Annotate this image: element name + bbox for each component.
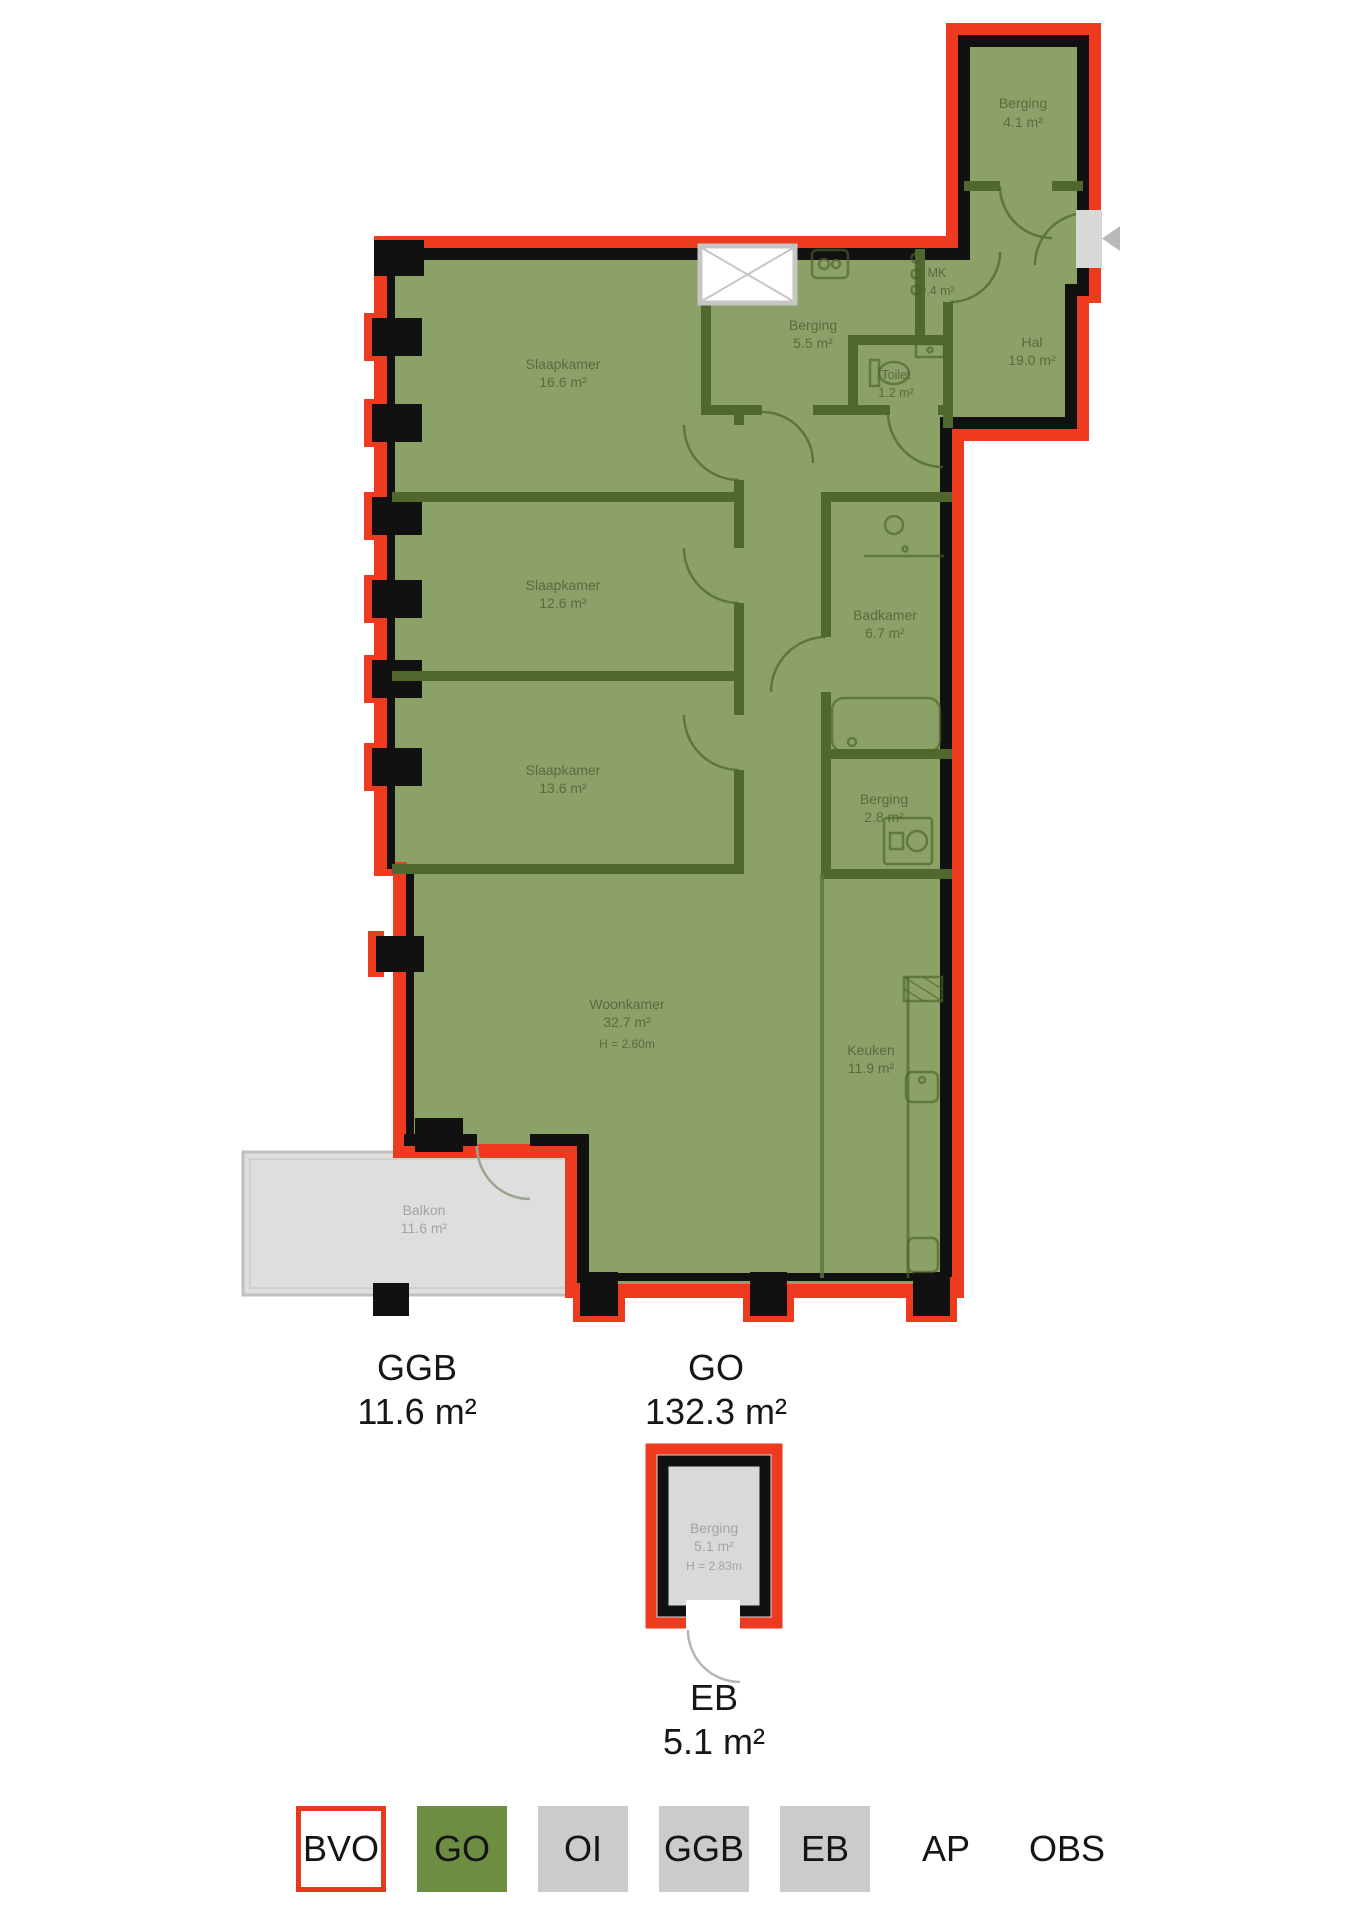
room-area: 1.2 m² — [878, 386, 913, 400]
room-label: Slaapkamer — [526, 762, 601, 778]
room-label: Woonkamer — [589, 996, 665, 1012]
legend-item-go: GO — [417, 1806, 507, 1892]
legend-item-eb: EB — [780, 1806, 870, 1892]
room-area: 2.8 m² — [864, 809, 904, 825]
legend-item-ggb: GGB — [659, 1806, 749, 1892]
room-area: 11.9 m² — [848, 1060, 895, 1076]
room-label: Toilet — [881, 368, 911, 382]
room-label: Berging — [789, 317, 837, 333]
total-area: 11.6 m² — [287, 1390, 547, 1434]
total-go: GO 132.3 m² — [586, 1346, 846, 1434]
storage-door-gap — [686, 1600, 740, 1636]
room-label: Berging — [860, 791, 908, 807]
room-label: Badkamer — [853, 607, 917, 623]
room-label: MK — [928, 266, 947, 280]
entrance-door — [1076, 210, 1102, 268]
legend-item-oi: OI — [538, 1806, 628, 1892]
entrance — [1076, 210, 1120, 268]
room-label: Berging — [690, 1520, 738, 1536]
room-ceiling-height: H = 2.83m — [686, 1559, 742, 1573]
room-area: 12.6 m² — [539, 595, 587, 611]
room-area: 5.1 m² — [694, 1538, 734, 1554]
room-area: 13.6 m² — [539, 780, 587, 796]
room-area: 0.4 m² — [919, 284, 954, 298]
total-ggb: GGB 11.6 m² — [287, 1346, 547, 1434]
room-label: Hal — [1021, 334, 1042, 350]
room-label: Berging — [999, 95, 1047, 111]
room-area: 32.7 m² — [603, 1014, 651, 1030]
floorplan-drawing: Berging 4.1 m² MK 0.4 m² Hal 19.0 m² Ber… — [0, 0, 1358, 1920]
legend-item-ap: AP — [901, 1806, 991, 1892]
room-label: Balkon — [403, 1202, 446, 1218]
room-label: Slaapkamer — [526, 577, 601, 593]
shaft-icon — [700, 246, 795, 303]
room-area: 11.6 m² — [401, 1220, 448, 1236]
room-area: 4.1 m² — [1003, 114, 1043, 130]
entrance-arrow-icon — [1102, 226, 1120, 251]
total-area: 132.3 m² — [586, 1390, 846, 1434]
storage-door-swing-arc — [688, 1630, 740, 1682]
legend: BVO GO OI GGB EB AP OBS — [296, 1806, 1112, 1892]
external-storage-unit: Berging 5.1 m² H = 2.83m — [651, 1449, 777, 1682]
room-ceiling-height: H = 2.60m — [599, 1037, 655, 1051]
total-code: GO — [586, 1346, 846, 1390]
room-area: 16.6 m² — [539, 374, 587, 390]
room-label: Slaapkamer — [526, 356, 601, 372]
floorplan-page: Berging 4.1 m² MK 0.4 m² Hal 19.0 m² Ber… — [0, 0, 1358, 1920]
room-area: 19.0 m² — [1008, 352, 1056, 368]
room-area: 6.7 m² — [865, 625, 905, 641]
legend-item-bvo: BVO — [296, 1806, 386, 1892]
room-label: Keuken — [847, 1042, 894, 1058]
total-code: GGB — [287, 1346, 547, 1390]
legend-item-obs: OBS — [1022, 1806, 1112, 1892]
total-code: EB — [584, 1676, 844, 1720]
total-area: 5.1 m² — [584, 1720, 844, 1764]
total-eb: EB 5.1 m² — [584, 1676, 844, 1764]
room-area: 5.5 m² — [793, 335, 833, 351]
